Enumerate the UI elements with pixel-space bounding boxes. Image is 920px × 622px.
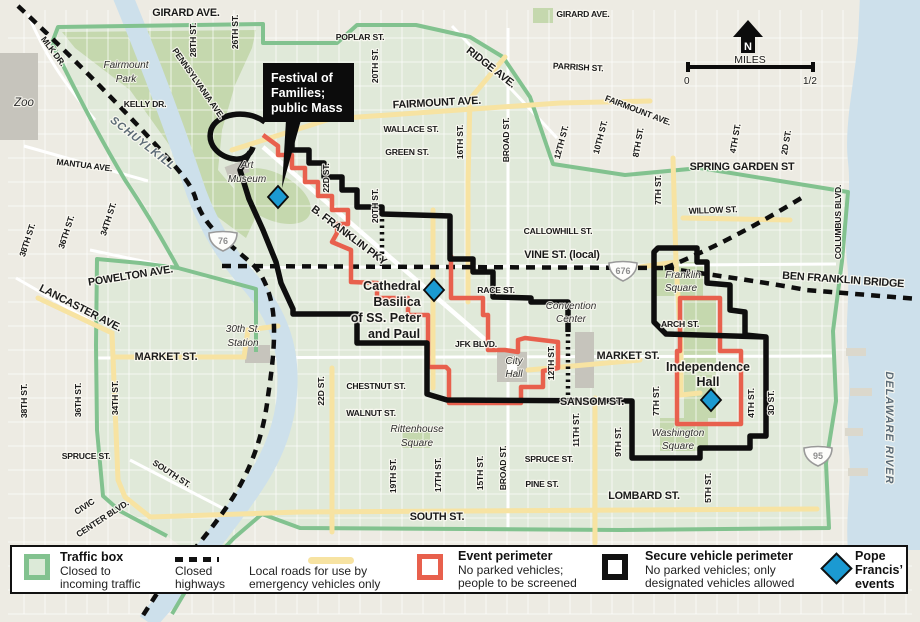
label-15th-st: 15TH ST. — [475, 456, 485, 490]
convention-center-building — [575, 332, 594, 388]
legend-item-event-perimeter: Event perimeter No parked vehicles; peop… — [458, 550, 577, 591]
label-independence-hall-2: Hall — [697, 375, 720, 389]
label-washington-square-1: Washington — [652, 428, 705, 439]
scale-end: 1/2 — [803, 76, 817, 87]
label-fairmount-park-2: Park — [116, 74, 138, 85]
label-20th-st-m: 20TH ST. — [370, 189, 380, 223]
label-convention-center-1: Convention — [546, 301, 597, 312]
label-delaware-river: DELAWARE RIVER — [883, 371, 895, 484]
legend-title-secure-perimeter: Secure vehicle perimeter — [645, 550, 794, 564]
map-canvas: GIRARD AVE.GIRARD AVE.POPLAR ST.RIDGE AV… — [0, 0, 920, 622]
label-30th-st-station-2: Station — [227, 338, 259, 349]
label-girard-ave-e: GIRARD AVE. — [556, 9, 609, 19]
scale-title: MILES — [734, 54, 766, 66]
label-spruce-st-w: SPRUCE ST. — [62, 451, 111, 461]
pier — [846, 348, 866, 356]
legend: Traffic box Closed to incoming traffic C… — [10, 545, 908, 594]
label-walnut-st: WALNUT ST. — [346, 408, 396, 418]
label-vine-st-local: VINE ST. (local) — [524, 249, 600, 261]
label-22d-st-n: 22D ST. — [321, 163, 331, 192]
shield-number: 76 — [218, 236, 228, 246]
label-cathedral-4: and Paul — [368, 327, 420, 341]
label-38th-st-s: 38TH ST. — [19, 384, 29, 418]
label-callowhill-st: CALLOWHILL ST. — [524, 226, 593, 236]
label-green-st: GREEN ST. — [385, 147, 429, 157]
label-rittenhouse-square-1: Rittenhouse — [390, 424, 444, 435]
label-16th-st: 16TH ST. — [455, 125, 465, 159]
label-fairmount-park-1: Fairmount — [103, 60, 149, 71]
label-9th-st: 9TH ST. — [613, 427, 623, 457]
emergency-road-willow — [683, 218, 790, 220]
pier — [850, 388, 872, 396]
label-11th-st: 11TH ST. — [571, 413, 581, 447]
legend-desc-event-perimeter: No parked vehicles; people to be screene… — [458, 564, 577, 591]
shield-number: 95 — [813, 451, 823, 461]
label-south-st-c: SOUTH ST. — [410, 511, 465, 523]
legend-swatch-pope-events — [825, 557, 848, 580]
label-franklin-square-1: Franklin — [665, 270, 701, 281]
label-art-museum-2: Museum — [228, 174, 266, 185]
callout-line-3: public Mass — [271, 101, 343, 115]
label-wallace-st: WALLACE ST. — [383, 124, 438, 134]
legend-desc-secure-perimeter: No parked vehicles; only designated vehi… — [645, 564, 794, 591]
label-columbus-blvd: COLUMBUS BLVD. — [833, 185, 843, 259]
label-jfk-blvd: JFK BLVD. — [455, 339, 497, 349]
label-broad-st-n: BROAD ST. — [501, 118, 511, 163]
legend-title-event-perimeter: Event perimeter — [458, 550, 577, 564]
scale-start: 0 — [684, 76, 690, 87]
label-cathedral-3: of SS. Peter — [351, 311, 421, 325]
legend-swatch-local-roads — [308, 557, 354, 564]
label-7th-st-s: 7TH ST. — [651, 386, 661, 416]
label-art-museum-1: Art — [240, 160, 255, 171]
label-22d-st-s: 22D ST. — [316, 376, 326, 405]
label-5th-st: 5TH ST. — [703, 473, 713, 503]
label-30th-st-station-1: 30th St. — [226, 324, 260, 335]
label-26th-st: 26TH ST. — [230, 15, 240, 49]
label-market-st-w: MARKET ST. — [135, 351, 198, 363]
legend-desc-local-roads: Local roads for use by emergency vehicle… — [249, 565, 380, 592]
label-spring-garden-st: SPRING GARDEN ST — [690, 161, 795, 173]
legend-title-pope-events: Pope Francis’ events — [855, 550, 903, 591]
label-rittenhouse-square-2: Square — [401, 438, 434, 449]
label-17th-st: 17TH ST. — [433, 458, 443, 492]
label-race-st: RACE ST. — [477, 285, 515, 295]
label-broad-st-s: BROAD ST. — [498, 446, 508, 491]
legend-item-traffic-box: Traffic box Closed to incoming traffic — [60, 551, 140, 592]
label-3d-st: 3D ST. — [766, 391, 776, 416]
label-washington-square-2: Square — [662, 441, 695, 452]
label-19th-st: 19TH ST. — [388, 459, 398, 493]
legend-desc-closed-highways: Closed highways — [175, 565, 225, 592]
pope-events-diamond-icon — [820, 552, 853, 585]
legend-swatch-secure-perimeter — [602, 554, 628, 580]
label-kelly-dr: KELLY DR. — [124, 99, 167, 109]
small-park — [533, 8, 553, 23]
legend-item-secure-perimeter: Secure vehicle perimeter No parked vehic… — [645, 550, 794, 591]
label-7th-st-n: 7TH ST. — [653, 175, 663, 205]
legend-swatch-event-perimeter — [417, 554, 443, 580]
legend-item-closed-highways: Closed highways — [175, 565, 225, 592]
compass-n-label: N — [744, 41, 752, 53]
label-lombard-st: LOMBARD ST. — [608, 490, 680, 502]
legend-swatch-traffic-box — [24, 554, 50, 580]
label-pine-st: PINE ST. — [525, 479, 558, 489]
label-poplar-st: POPLAR ST. — [336, 32, 385, 42]
label-cathedral-2: Basilica — [373, 295, 421, 309]
legend-desc-traffic-box: Closed to incoming traffic — [60, 565, 140, 592]
label-36th-st-s: 36TH ST. — [73, 383, 83, 417]
traffic-map: GIRARD AVE.GIRARD AVE.POPLAR ST.RIDGE AV… — [0, 0, 920, 622]
label-convention-center-2: Center — [556, 314, 587, 325]
label-independence-hall-1: Independence — [666, 360, 750, 374]
label-20th-st-n: 20TH ST. — [370, 49, 380, 83]
label-arch-st: ARCH ST. — [661, 319, 699, 329]
label-12th-st-s: 12TH ST. — [546, 346, 556, 380]
label-franklin-square-2: Square — [665, 283, 698, 294]
shield-number: 676 — [615, 266, 630, 276]
pier — [848, 468, 868, 476]
callout-line-1: Festival of — [271, 71, 334, 85]
label-city-hall-1: City — [505, 356, 523, 367]
pier — [845, 428, 863, 436]
label-market-st-e: MARKET ST. — [597, 350, 660, 362]
label-28th-st: 28TH ST. — [188, 23, 198, 57]
label-zoo: Zoo — [13, 97, 34, 109]
label-willow-st: WILLOW ST. — [688, 204, 737, 216]
label-spruce-st-e: SPRUCE ST. — [525, 454, 574, 464]
label-sansom-st: SANSOM ST. — [560, 396, 624, 408]
label-cathedral-1: Cathedral — [363, 279, 421, 293]
label-4th-st-s: 4TH ST. — [746, 388, 756, 418]
label-chestnut-st: CHESTNUT ST. — [346, 381, 405, 391]
legend-item-pope-events: Pope Francis’ events — [855, 550, 903, 591]
legend-title-traffic-box: Traffic box — [60, 551, 140, 565]
callout-line-2: Families; — [271, 86, 325, 100]
legend-item-local-roads: Local roads for use by emergency vehicle… — [249, 565, 380, 592]
label-city-hall-2: Hall — [505, 369, 523, 380]
label-girard-ave-w: GIRARD AVE. — [152, 7, 220, 19]
label-34th-st-s: 34TH ST. — [110, 381, 120, 415]
legend-swatch-closed-highways — [175, 557, 219, 562]
